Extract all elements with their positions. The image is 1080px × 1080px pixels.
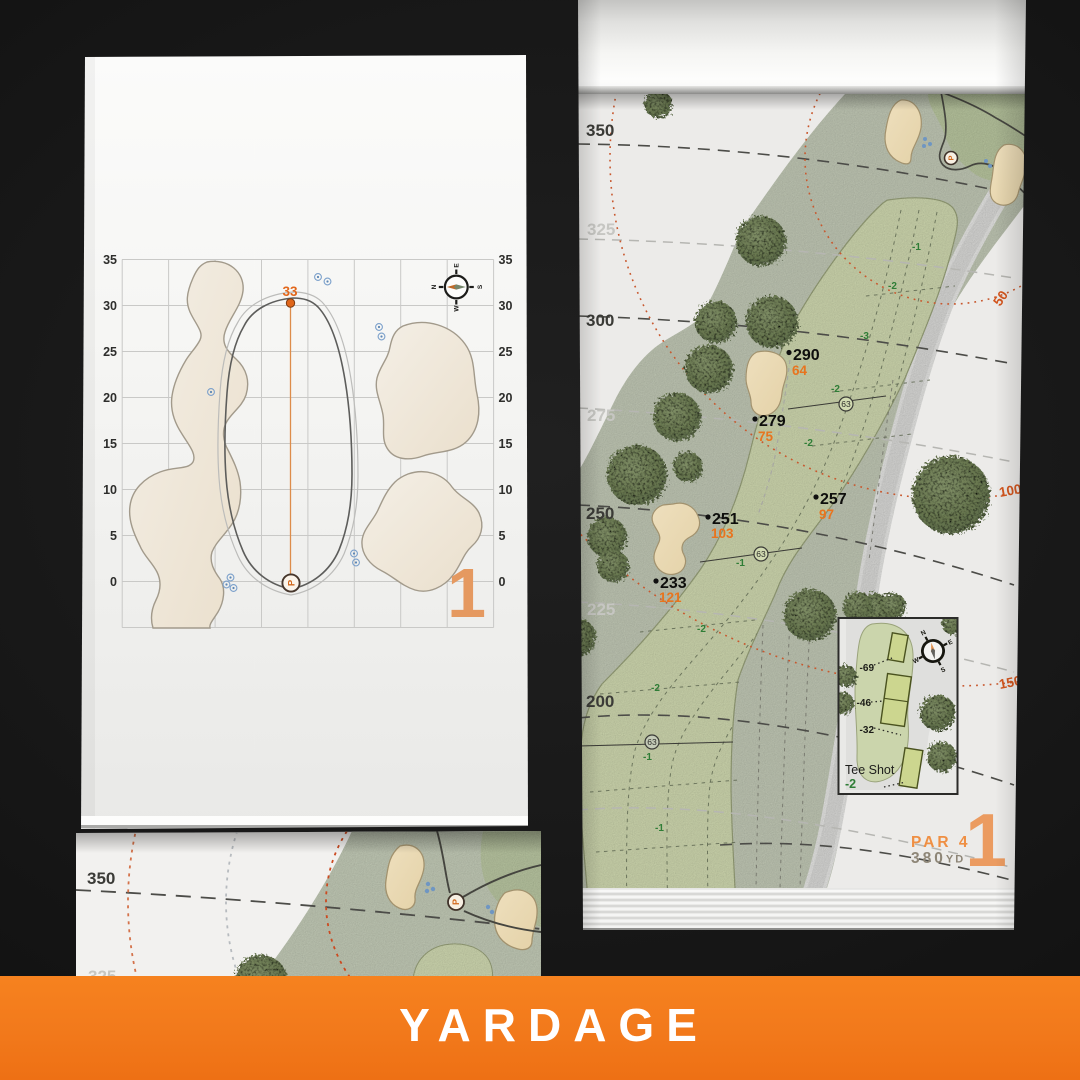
svg-text:-32: -32 xyxy=(860,725,875,736)
svg-text:15: 15 xyxy=(103,437,117,451)
svg-text:350: 350 xyxy=(87,869,115,888)
svg-text:Tee Shot: Tee Shot xyxy=(845,763,895,777)
svg-text:P: P xyxy=(286,579,297,586)
svg-text:63: 63 xyxy=(647,737,657,747)
svg-text:W: W xyxy=(454,305,461,312)
svg-text:1: 1 xyxy=(447,554,486,632)
svg-text:20: 20 xyxy=(499,391,513,405)
svg-text:-2: -2 xyxy=(651,683,660,694)
svg-text:15: 15 xyxy=(499,437,513,451)
svg-text:-69: -69 xyxy=(860,663,875,674)
svg-text:5: 5 xyxy=(110,529,117,543)
svg-text:-1: -1 xyxy=(912,242,921,253)
svg-text:-2: -2 xyxy=(831,384,840,395)
svg-text:63: 63 xyxy=(841,399,851,409)
svg-text:257: 257 xyxy=(820,491,847,508)
svg-text:25: 25 xyxy=(103,345,117,359)
svg-text:10: 10 xyxy=(499,483,513,497)
svg-text:121: 121 xyxy=(659,590,682,605)
svg-text:279: 279 xyxy=(759,413,786,430)
svg-text:75: 75 xyxy=(758,429,774,444)
svg-text:-1: -1 xyxy=(655,823,664,834)
svg-text:-2: -2 xyxy=(804,438,813,449)
svg-text:-1: -1 xyxy=(736,558,745,569)
svg-text:33: 33 xyxy=(282,284,298,299)
svg-text:N: N xyxy=(431,284,438,289)
svg-text:63: 63 xyxy=(756,549,766,559)
svg-text:PAR 4: PAR 4 xyxy=(911,834,971,851)
svg-text:-3: -3 xyxy=(860,331,869,342)
svg-text:-2: -2 xyxy=(697,624,706,635)
svg-text:0: 0 xyxy=(110,575,117,589)
svg-text:35: 35 xyxy=(499,253,513,267)
svg-text:P: P xyxy=(451,899,461,905)
svg-text:-46: -46 xyxy=(857,698,872,709)
svg-text:30: 30 xyxy=(103,299,117,313)
svg-text:S: S xyxy=(477,284,484,289)
svg-text:25: 25 xyxy=(499,345,513,359)
svg-text:-2: -2 xyxy=(845,777,856,791)
svg-text:P: P xyxy=(947,155,956,160)
svg-text:64: 64 xyxy=(792,363,808,378)
svg-text:-2: -2 xyxy=(888,281,897,292)
svg-text:35: 35 xyxy=(103,253,117,267)
svg-text:97: 97 xyxy=(819,507,834,522)
svg-text:10: 10 xyxy=(103,483,117,497)
svg-text:0: 0 xyxy=(499,575,506,589)
svg-text:290: 290 xyxy=(793,347,820,364)
svg-text:380YD: 380YD xyxy=(911,850,965,867)
svg-text:30: 30 xyxy=(499,299,513,313)
svg-text:E: E xyxy=(454,263,461,268)
svg-text:20: 20 xyxy=(103,391,117,405)
svg-text:103: 103 xyxy=(711,526,734,541)
svg-text:-1: -1 xyxy=(643,752,652,763)
svg-text:5: 5 xyxy=(499,529,506,543)
